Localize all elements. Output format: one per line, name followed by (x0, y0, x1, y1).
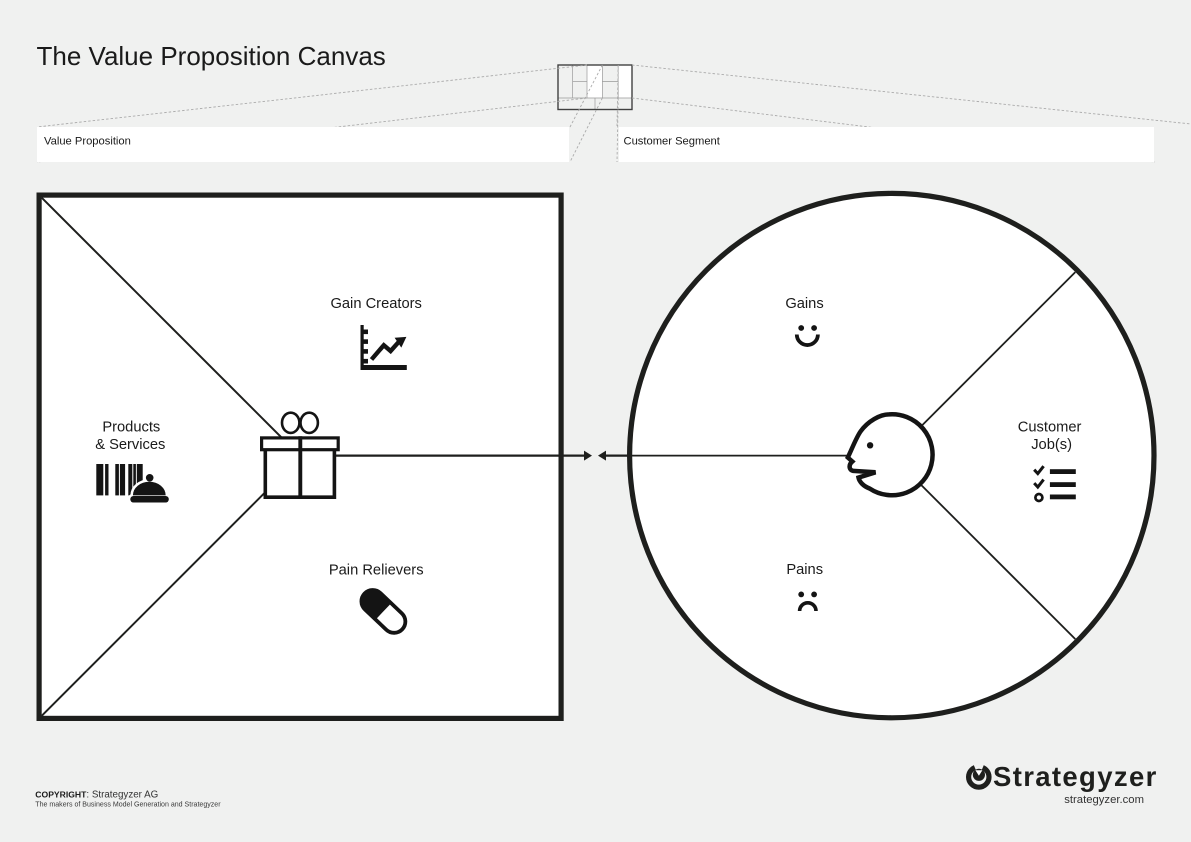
svg-text:& Services: & Services (95, 437, 165, 453)
svg-text:Gains: Gains (785, 296, 823, 312)
svg-text:The Value Proposition Canvas: The Value Proposition Canvas (37, 41, 386, 71)
svg-text:Customer Segment: Customer Segment (624, 135, 721, 147)
svg-text:Pains: Pains (786, 562, 823, 578)
svg-text:strategyzer.com: strategyzer.com (1064, 794, 1144, 806)
svg-text:Value Proposition: Value Proposition (44, 135, 131, 147)
svg-text:COPYRIGHT: Strategyzer AG: COPYRIGHT: Strategyzer AG (35, 789, 158, 800)
svg-text:Products: Products (102, 419, 160, 435)
svg-text:Job(s): Job(s) (1031, 437, 1072, 453)
svg-text:Gain Creators: Gain Creators (330, 296, 421, 312)
svg-text:Strategyzer: Strategyzer (993, 761, 1158, 792)
svg-text:The makers of Business Model G: The makers of Business Model Generation … (35, 801, 221, 808)
svg-text:Pain Relievers: Pain Relievers (329, 563, 424, 579)
svg-text:Customer: Customer (1018, 420, 1082, 436)
